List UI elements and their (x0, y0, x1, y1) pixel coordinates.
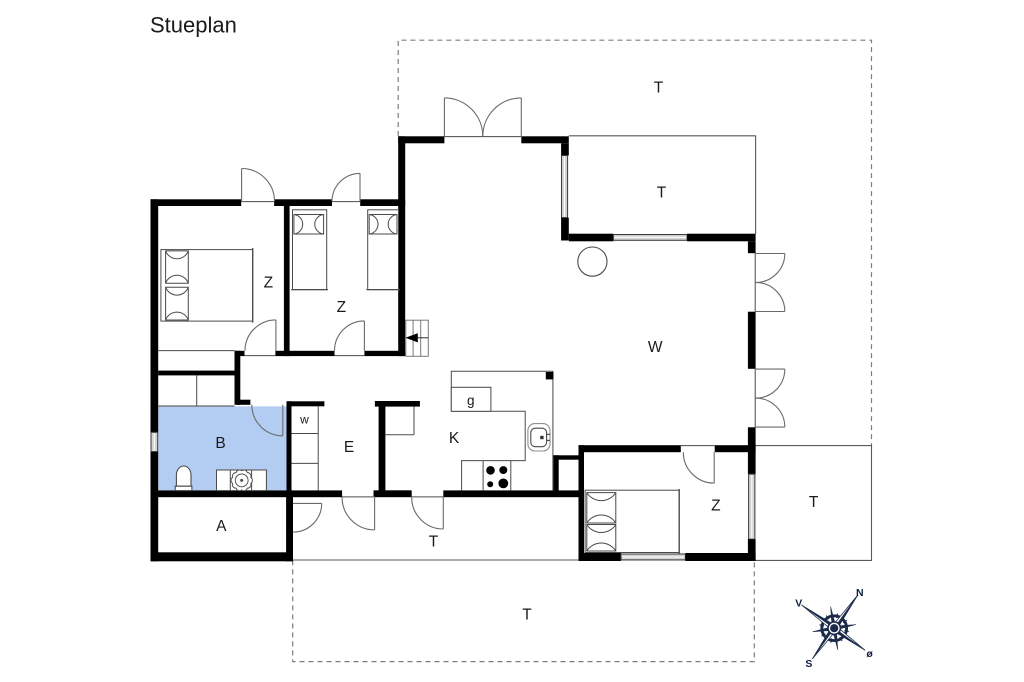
svg-text:T: T (657, 185, 667, 202)
svg-text:T: T (654, 80, 664, 97)
svg-text:S: S (805, 658, 812, 670)
svg-text:K: K (449, 430, 460, 447)
svg-text:w: w (299, 413, 309, 427)
svg-text:Z: Z (711, 497, 720, 514)
svg-text:g: g (467, 393, 475, 408)
svg-text:ø: ø (866, 648, 873, 660)
svg-text:E: E (344, 439, 354, 456)
svg-text:T: T (522, 607, 532, 624)
svg-text:W: W (648, 339, 663, 356)
svg-text:B: B (215, 435, 225, 452)
svg-text:Z: Z (264, 274, 273, 291)
svg-text:V: V (795, 598, 802, 610)
svg-text:A: A (216, 518, 227, 535)
svg-text:N: N (856, 587, 864, 599)
svg-text:Stueplan: Stueplan (150, 13, 237, 38)
svg-text:Z: Z (337, 299, 346, 316)
svg-text:T: T (809, 494, 819, 511)
svg-text:T: T (429, 534, 439, 551)
